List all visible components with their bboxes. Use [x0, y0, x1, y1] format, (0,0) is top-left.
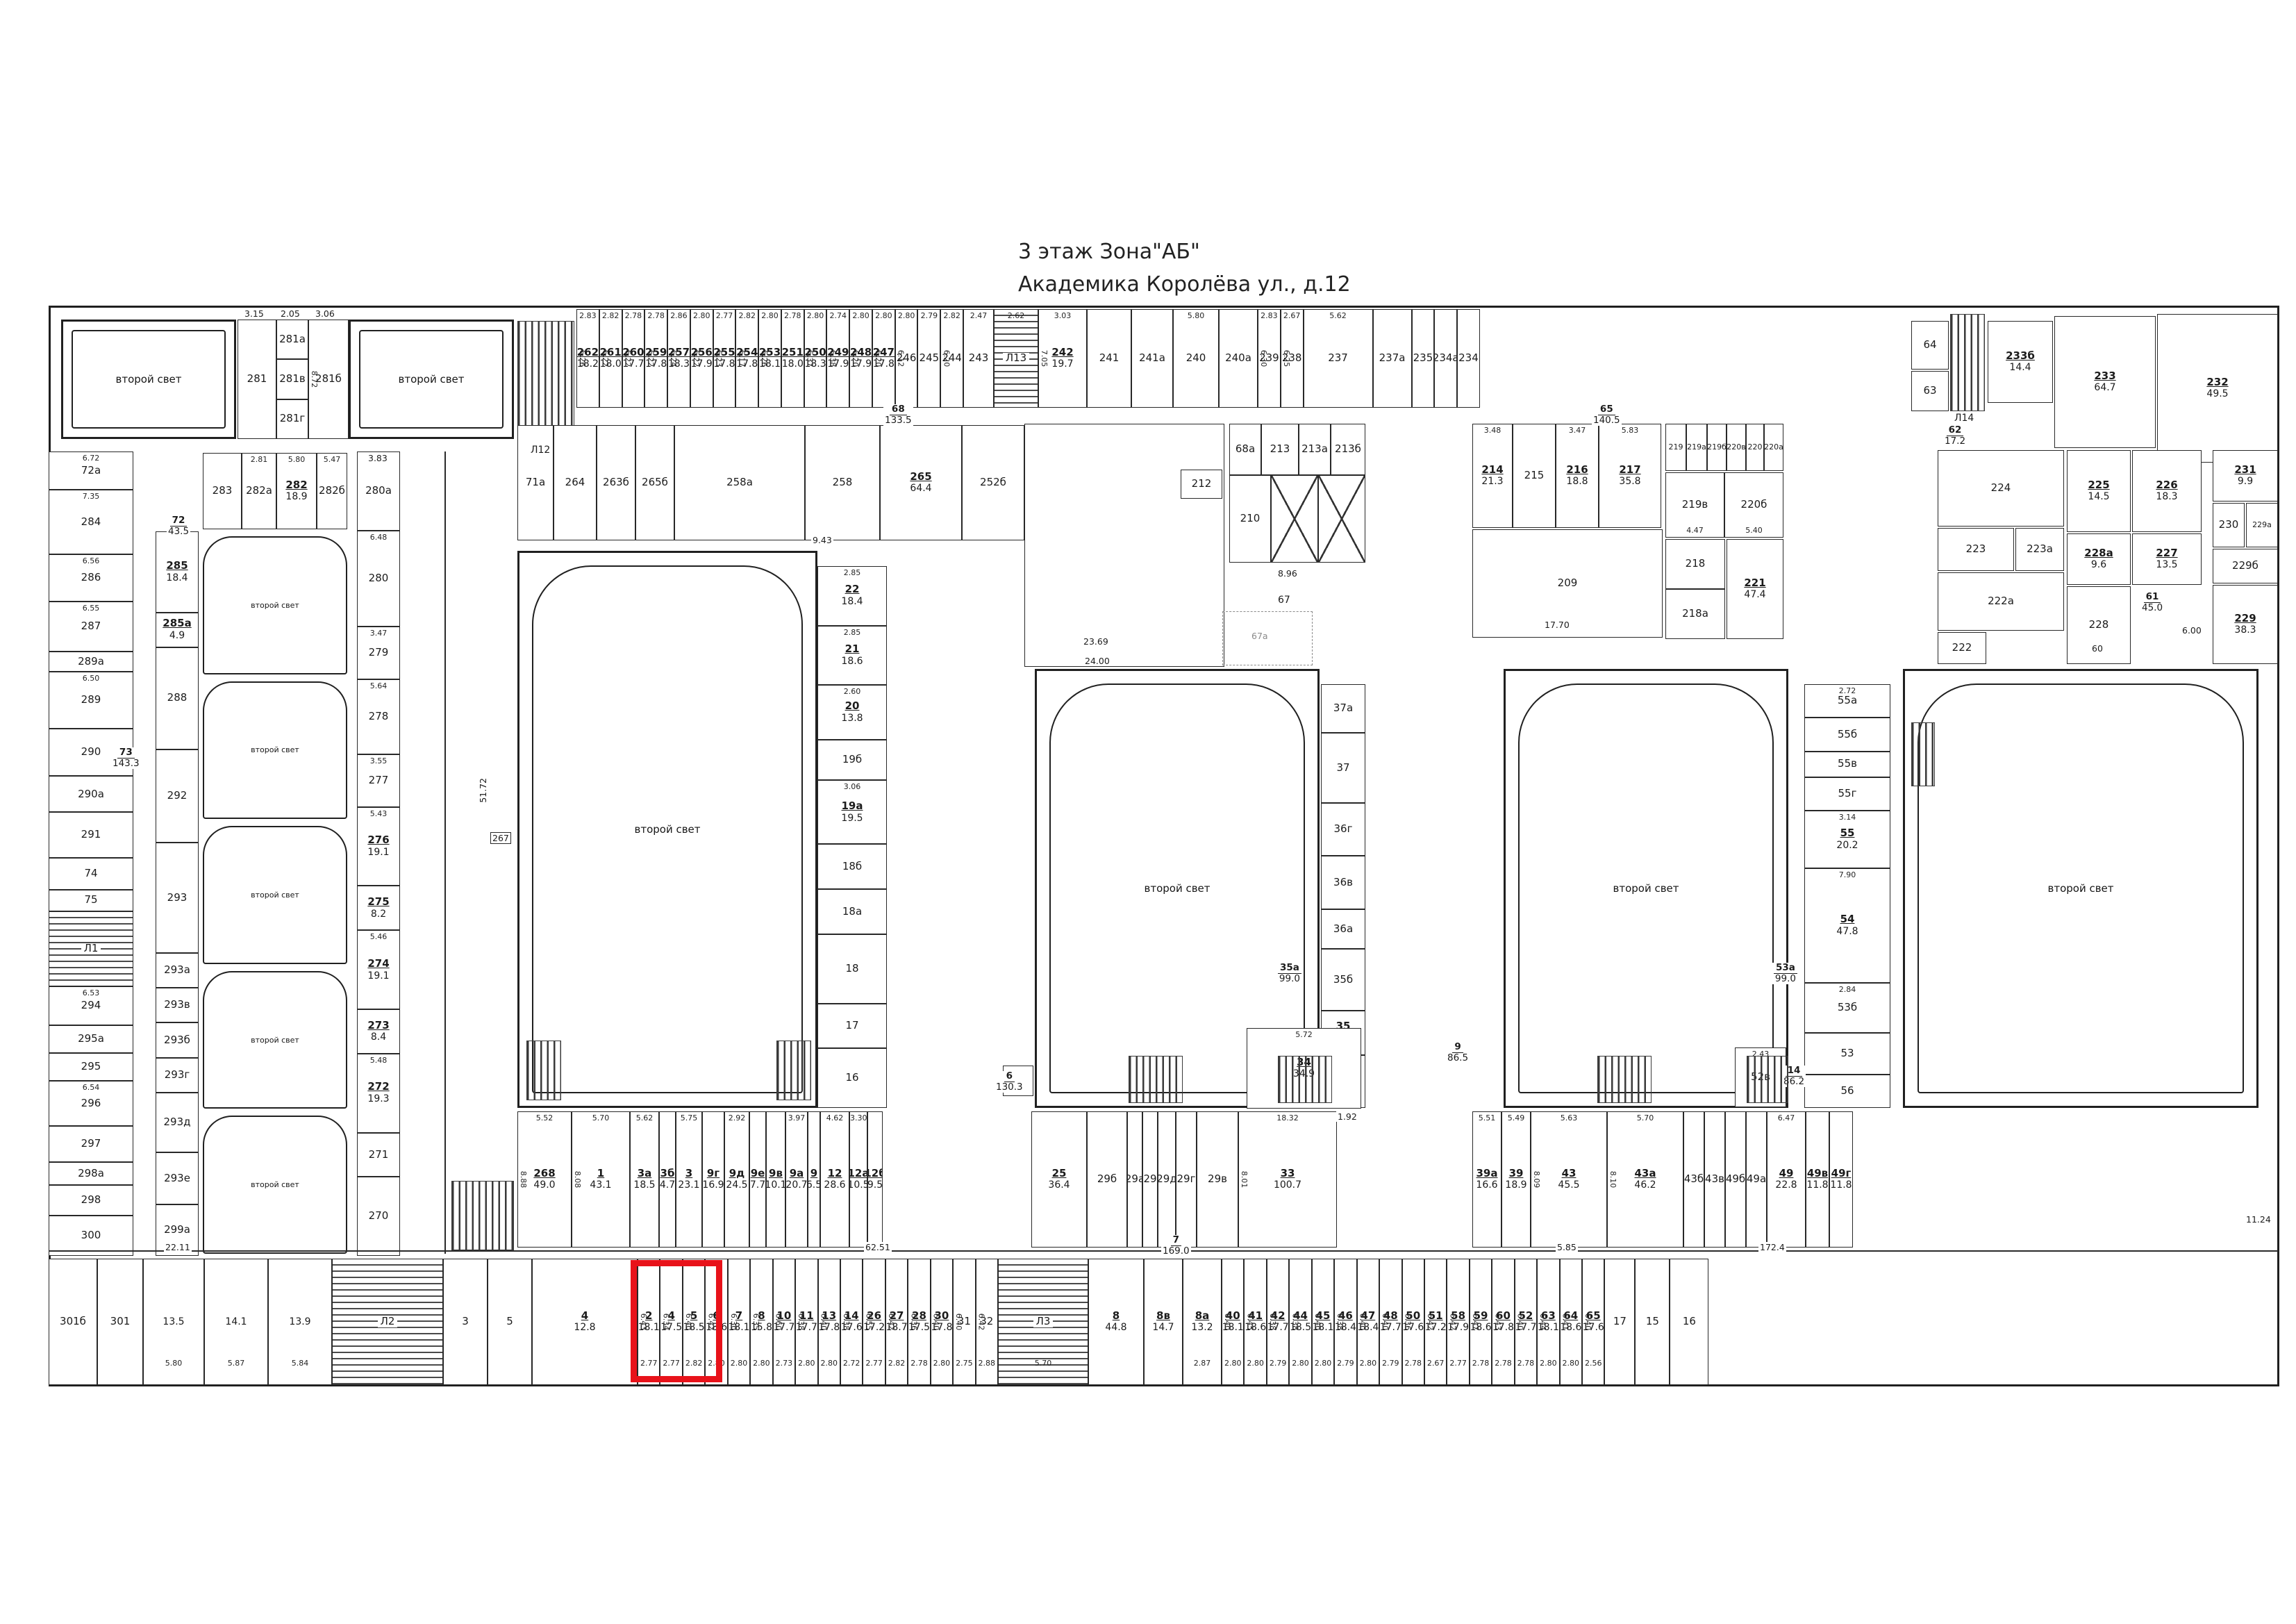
room-area: 13.2: [1191, 1322, 1213, 1333]
room-depth-dim: 8.88: [519, 1171, 528, 1188]
room-width-dim: 2.80: [805, 311, 826, 320]
room-width-dim: 2.74: [827, 311, 849, 320]
room-cell: 5.70 8.08 1 43.1: [572, 1111, 630, 1248]
corridor-area: 17.2: [1945, 436, 1965, 447]
room-width-dim: 2.80: [1290, 1359, 1311, 1368]
room-width-dim: 5.80: [277, 455, 316, 464]
room-number: 36г: [1334, 824, 1353, 835]
room-depth-dim: 6.40: [1313, 1314, 1322, 1331]
room-cell: 2.80 6.40 40 18.1: [1222, 1259, 1244, 1385]
room-cell: 2.81 282а: [242, 453, 276, 529]
room-number: 281а: [279, 334, 306, 345]
room-depth-dim: 6.26: [578, 350, 587, 367]
corridor-area: 169.0: [1163, 1246, 1190, 1257]
room-area: 20.2: [1836, 840, 1858, 851]
room-cell: 29г: [1176, 1111, 1197, 1248]
dim-1-92: 1.92: [1336, 1111, 1358, 1122]
room-number: 227: [2156, 548, 2177, 559]
highlight-red-box: [631, 1260, 722, 1382]
hall-stacked-4: второй свет: [203, 971, 347, 1109]
room-area: 18.9: [285, 491, 307, 502]
room-number: 3: [462, 1316, 469, 1327]
drawing-title: 3 этаж Зона"АБ" Академика Королёва ул., …: [1018, 236, 1351, 301]
room-cell: 6.54 296: [49, 1081, 133, 1127]
room-depth-dim: 6.40: [1381, 1314, 1390, 1331]
room-number: 15: [1646, 1316, 1659, 1327]
room-width-dim: 2.82: [736, 311, 758, 320]
room-cell: Л2: [332, 1259, 443, 1385]
room-number: 220а: [1764, 443, 1783, 451]
room-number: 284: [81, 517, 101, 528]
room-number: 233: [2094, 371, 2115, 382]
corridor-65-label: 65 140.5: [1592, 404, 1622, 426]
room-number: 29в: [1208, 1174, 1227, 1185]
room-cell: 2.83 6.26 262 18.2: [576, 309, 599, 408]
room-cell: 2.78 6.47 59 18.6: [1470, 1259, 1492, 1385]
stair-L14: [1950, 314, 1985, 411]
room-width-dim: 2.77: [714, 311, 735, 320]
room-cell: 258а: [674, 425, 805, 540]
room-area: 16.9: [702, 1179, 724, 1191]
room-cell: 29а: [1127, 1111, 1142, 1248]
room-cell: 288: [156, 647, 199, 749]
room-number: 17: [1613, 1316, 1627, 1327]
room-cell: 2.82 6.17 254 17.8: [735, 309, 758, 408]
room-depth-dim: 6.38: [1336, 1314, 1345, 1331]
room-width-dim: 2.87: [1183, 1359, 1221, 1368]
room-cell: 270: [357, 1177, 400, 1256]
room-width-dim: 5.64: [358, 681, 399, 690]
left-right-room-column: 6.20 280а 6.48 280 3.47 279 5.64 278 3.5…: [357, 451, 400, 1256]
room-width-dim: 3.48: [1473, 426, 1512, 435]
room-number: 3а: [638, 1168, 652, 1179]
room-area: 13.9: [289, 1316, 310, 1327]
room-depth-dim: 6.44: [1538, 1314, 1547, 1331]
dim-label: 3.83: [367, 453, 389, 463]
room-number: 293в: [164, 1000, 190, 1011]
corridor-7-label: 7 169.0: [1161, 1235, 1191, 1257]
room-cell: 43в: [1704, 1111, 1725, 1248]
room-number: 293: [167, 893, 188, 904]
room-cell: 2.77 6.55 26 17.2: [863, 1259, 885, 1385]
room-cell: 6.48 280: [357, 531, 400, 627]
room-cell: 2.80 6.30 7 18.1: [728, 1259, 750, 1385]
room-width-dim: 5.87: [205, 1359, 267, 1368]
room-cell: 36а: [1321, 909, 1365, 950]
room-width-dim: 5.63: [1531, 1113, 1606, 1122]
room-cell: 298а: [49, 1162, 133, 1184]
room-cell: 2.86 6.24 257 18.3: [667, 309, 690, 408]
room-area: 22.8: [1775, 1179, 1797, 1191]
room-width-dim: 2.78: [1492, 1359, 1513, 1368]
room-cell: 2.56 6.40 65 17.6: [1582, 1259, 1604, 1385]
hall-label: второй свет: [251, 601, 299, 610]
hall-label: второй свет: [1144, 882, 1210, 895]
room-number: 12а: [849, 1168, 867, 1179]
room-cell: 285а 4.9: [156, 613, 199, 647]
room-number: 293а: [164, 965, 190, 976]
room-number: 9г: [707, 1168, 719, 1179]
room-depth-dim: 6.22: [692, 350, 701, 367]
room-number: 281г: [280, 413, 306, 424]
corridor-35a-label: 35а 99.0: [1276, 963, 1303, 984]
room-67-label: 67: [1276, 595, 1292, 606]
room-number: 240а: [1225, 353, 1251, 364]
room-width-dim: 5.75: [676, 1113, 701, 1122]
room-212: 212: [1181, 470, 1222, 499]
room-number: 75: [84, 895, 97, 906]
room-depth-dim: 6.20: [851, 350, 860, 367]
room-width-dim: 6.47: [1767, 1113, 1805, 1122]
room-number: 232: [2206, 377, 2228, 388]
corridor-number: 61: [2144, 592, 2161, 603]
room-cell: 258: [805, 425, 880, 540]
room-cell: 2.75 6.40 31: [953, 1259, 975, 1385]
room-width-dim: 5.40: [1725, 526, 1783, 535]
room-width-dim: 3.47: [358, 629, 399, 638]
stair-left-corridor: [451, 1181, 514, 1250]
room-area: 13.8: [841, 713, 863, 724]
room-cell: 71а: [517, 425, 554, 540]
room-230: 230: [2213, 503, 2245, 547]
room-number: 3б: [660, 1168, 675, 1179]
room-cell: 3.06 19а 19.5: [817, 780, 887, 845]
room-width-dim: 2.80: [1561, 1359, 1581, 1368]
room-number: 295а: [78, 1034, 104, 1045]
room-cell: 8 44.8: [1088, 1259, 1144, 1385]
room-cell: 234: [1457, 309, 1480, 408]
rooms-219-220-row: 219 219а 219б 220в 220 220а: [1665, 424, 1783, 471]
room-width-dim: 2.82: [600, 311, 622, 320]
room-area: 4.7: [660, 1179, 675, 1191]
room-number: 223а: [2027, 544, 2053, 555]
room-64: 64: [1911, 321, 1949, 370]
room-cell: Л1: [49, 911, 133, 986]
room-area: 18.5: [633, 1179, 655, 1191]
room-width-dim: 2.73: [774, 1359, 795, 1368]
room-cell: 2.80 6.40 13 17.8: [818, 1259, 840, 1385]
room-number: 39а: [1476, 1168, 1498, 1179]
room-number: 3: [685, 1168, 692, 1179]
room-cell: 6.53 294: [49, 986, 133, 1026]
room-width-dim: 2.83: [1258, 311, 1280, 320]
room-cell: 5.51 39а 16.6: [1472, 1111, 1501, 1248]
corridor-number: 68: [890, 404, 907, 415]
room-depth-dim: 6.42: [887, 1314, 896, 1331]
room-width-dim: 2.78: [1403, 1359, 1424, 1368]
corridor-area: 133.5: [885, 415, 912, 426]
corridor-61-label: 61 45.0: [2140, 592, 2164, 613]
room-width-dim: 2.67: [1281, 311, 1303, 320]
room-number: 25: [1052, 1168, 1067, 1179]
room-cell: 263б: [597, 425, 635, 540]
room-number: 55а: [1838, 695, 1857, 706]
room-width-dim: 2.78: [645, 311, 667, 320]
room-cell: 2.77 6.42 58 17.9: [1447, 1259, 1469, 1385]
room-number: 21: [845, 644, 860, 655]
room-cell: 2.78 251 18.0: [781, 309, 804, 408]
room-cell: 218: [1665, 539, 1725, 589]
room-cell: 5.46 274 19.1: [357, 930, 400, 1009]
room-number: 291: [81, 829, 101, 840]
room-area: 14.5: [2088, 491, 2109, 502]
room-cell: 2.80 6.40 30 17.8: [931, 1259, 953, 1385]
room-number: 234а: [1434, 353, 1457, 364]
room-number: 245: [920, 353, 940, 364]
room-width-dim: 7.35: [49, 492, 133, 501]
room-depth-dim: 6.36: [909, 1314, 918, 1331]
room-number: 74: [84, 868, 97, 879]
room-cell: 293г: [156, 1058, 199, 1093]
room-cell: 2.83 6.30 239: [1258, 309, 1281, 408]
room-number: 212: [1192, 479, 1212, 490]
room-number: 301: [110, 1316, 131, 1327]
room-number: 231: [2234, 465, 2256, 476]
room-cell: 5.49 39 18.9: [1501, 1111, 1531, 1248]
room-number: Л2: [378, 1316, 398, 1327]
room-number: 233б: [2006, 351, 2035, 362]
room-number: 270: [369, 1211, 389, 1222]
room-area: 18.3: [2156, 491, 2177, 502]
room-cell: 237а: [1373, 309, 1412, 408]
room-281b: 281б 8.72: [308, 320, 349, 439]
room-number: 274: [367, 959, 389, 970]
room-cell: 213а: [1299, 424, 1331, 475]
hall-inner: второй свет: [1918, 683, 2244, 1093]
room-width-dim: 5.46: [358, 932, 399, 941]
room-width-dim: 2.78: [1515, 1359, 1536, 1368]
room-width-dim: 2.88: [976, 1359, 997, 1368]
room-number: 12: [828, 1168, 842, 1179]
room-67a-label: 67а: [1250, 631, 1270, 641]
room-number: 18б: [842, 861, 862, 872]
room-width-dim: 2.80: [1358, 1359, 1379, 1368]
room-depth-dim: 6.37: [806, 350, 815, 367]
room-area: 18.6: [841, 656, 863, 667]
room-width-dim: 3.06: [818, 782, 886, 791]
room-depth-dim: 6.42: [977, 1314, 986, 1331]
room-width-dim: 4.62: [821, 1113, 849, 1122]
room-area: 9.6: [2091, 559, 2106, 570]
room-number: 237а: [1379, 353, 1406, 364]
room-cell: 75: [49, 890, 133, 911]
room-cell: 37а: [1321, 684, 1365, 733]
room-cell: 18.32 8.01 33 100.7: [1238, 1111, 1337, 1248]
room-cell: 2.78 6.40 52 17.7: [1515, 1259, 1537, 1385]
room-width-dim: 2.82: [941, 311, 963, 320]
hall-label: второй свет: [398, 373, 464, 386]
room-cell: 293в: [156, 988, 199, 1022]
room-number: 224: [1991, 483, 2011, 494]
room-number: 213б: [1335, 444, 1361, 455]
room-width-dim: 5.70: [999, 1359, 1088, 1368]
room-depth-dim: 6.41: [1561, 1314, 1570, 1331]
room-depth-dim: 6.40: [1516, 1314, 1525, 1331]
room-cell: 293е: [156, 1152, 199, 1204]
room-area: 19.7: [1051, 358, 1073, 370]
room-width-dim: 2.67: [1425, 1359, 1446, 1368]
room-cell: 29д: [1158, 1111, 1176, 1248]
room-cell: 2.85 22 18.4: [817, 566, 887, 626]
corridor-53a-label: 53а 99.0: [1772, 963, 1799, 984]
room-number: 223: [1966, 544, 1986, 555]
room-number: Л13: [1003, 353, 1029, 364]
room-number: 33: [1281, 1168, 1295, 1179]
room-cell: 15: [1635, 1259, 1670, 1385]
room-number: 22: [845, 584, 860, 595]
room-depth-dim: 6.42: [1426, 1314, 1435, 1331]
room-area: 47.8: [1836, 926, 1858, 937]
dim-23-69: 23.69: [1082, 636, 1110, 647]
rooms-281a-group: 281а 281в 281г: [276, 320, 308, 439]
room-width-dim: 2.80: [873, 311, 895, 320]
room-cell: 68а: [1229, 424, 1261, 475]
room-area: 21.3: [1481, 476, 1503, 487]
room-cell: 293а: [156, 953, 199, 988]
hall3-hall4-column: 2.72 55а 55б 55в 55г 3.14 55 20.2 7.90 5…: [1804, 684, 1890, 1108]
room-number: 272: [367, 1082, 389, 1093]
room-area: 11.8: [1830, 1179, 1852, 1191]
stairwell-hall3-right: [1747, 1056, 1788, 1103]
room-width-dim: 5.83: [1599, 426, 1661, 435]
room-depth-dim: 6.40: [1358, 1314, 1367, 1331]
room-width-dim: 18.32: [1239, 1113, 1336, 1122]
room-depth-dim: 6.12: [897, 350, 906, 367]
room-width-dim: 2.80: [896, 311, 917, 320]
hall-stacked-2: второй свет: [203, 681, 347, 820]
room-number: 68а: [1236, 444, 1255, 455]
room-cell: 49а: [1746, 1111, 1767, 1248]
room-cell: 220б 5.40: [1724, 472, 1783, 538]
room-number: 55: [1840, 828, 1855, 839]
room-number: 55г: [1838, 788, 1857, 799]
room-or-lift-cell: [1318, 475, 1365, 563]
room-cell: 6.72 72а: [49, 451, 133, 490]
room-number: 281: [247, 374, 267, 385]
room-number: 229а: [2252, 521, 2272, 529]
room-cell: 2.67 6.42 51 17.2: [1424, 1259, 1447, 1385]
room-cell: 220в: [1727, 424, 1746, 471]
room-depth-dim: 6.22: [601, 350, 610, 367]
room-number: 37: [1336, 763, 1349, 774]
room-cell: 55г: [1804, 777, 1890, 811]
room-cell: 5.84 13.9: [268, 1259, 332, 1385]
hall-inner: второй свет: [72, 330, 226, 429]
room-number: 294: [81, 1000, 101, 1011]
hall-topleft-2: второй свет: [349, 320, 514, 439]
room-number: 16: [1683, 1316, 1696, 1327]
inner-room-column: 285 18.4 285а 4.9 288 292 293 293а 293в …: [156, 531, 199, 1256]
corridor-number: 53а: [1774, 963, 1797, 974]
room-number: 230: [2219, 520, 2239, 531]
room-width-dim: 2.80: [1313, 1359, 1333, 1368]
room-depth-dim: 6.55: [864, 1314, 873, 1331]
room-number: 1: [597, 1168, 604, 1179]
room-number: 228а: [2084, 548, 2113, 559]
dim-11-24: 11.24: [2245, 1214, 2272, 1225]
row-above-hall-1: 71а 264 263б 265б 258а 258 265 64.4 252б: [517, 425, 1024, 540]
room-number: 18а: [842, 906, 862, 918]
room-depth-dim: 6.38: [797, 1314, 806, 1331]
room-cell: 2.78 6.36 28 17.5: [908, 1259, 930, 1385]
room-cell: 18б: [817, 844, 887, 889]
room-depth-dim: 6.25: [1282, 350, 1291, 367]
room-cell: 55б: [1804, 718, 1890, 751]
room-number: 286: [81, 572, 101, 583]
room-number: 235: [1413, 353, 1433, 364]
hall-label: второй свет: [251, 745, 299, 754]
room-cell: 3б 4.7: [659, 1111, 676, 1248]
hall-label: второй свет: [1613, 882, 1679, 895]
room-area: 44.8: [1105, 1322, 1126, 1333]
room-cell: 6.20 280а: [357, 451, 400, 531]
room-cell: 9г 16.9: [702, 1111, 724, 1248]
room-number: 17: [845, 1020, 858, 1031]
room-depth-dim: 8.09: [1532, 1171, 1541, 1188]
room-area: 46.2: [1634, 1179, 1656, 1191]
corridor-area: 99.0: [1279, 974, 1300, 984]
room-cell: 5: [488, 1259, 532, 1385]
room-cell: 235: [1412, 309, 1435, 408]
room-cell: 219в 4.47: [1665, 472, 1724, 538]
room-number: 12б: [867, 1168, 883, 1179]
room-area: 6.5: [808, 1179, 820, 1191]
room-width-dim: 3.55: [358, 756, 399, 765]
room-cell: 241а: [1131, 309, 1173, 408]
room-depth-dim: 6.20: [942, 350, 951, 367]
room-width-dim: 2.80: [1222, 1359, 1243, 1368]
room-number: 9: [810, 1168, 817, 1179]
room-number: 210: [1240, 513, 1261, 524]
room-depth-dim: 6.45: [1245, 1314, 1254, 1331]
room-cell: 5.80 13.5: [143, 1259, 204, 1385]
room-cell: 3.03 7.05 242 19.7: [1038, 309, 1087, 408]
room-233: 233 64.7: [2054, 316, 2156, 448]
room-number: 209: [1558, 578, 1578, 589]
room-cell: 2.47 243: [963, 309, 994, 408]
corridor-number: 35а: [1278, 963, 1301, 974]
room-number: 301б: [60, 1316, 86, 1327]
room-number: 49б: [1726, 1174, 1745, 1185]
room-number: 293б: [164, 1035, 190, 1046]
rooms-219v-220b-row: 219в 4.47 220б 5.40: [1665, 472, 1783, 538]
room-number: 297: [81, 1138, 101, 1150]
room-area: 13.5: [2156, 559, 2177, 570]
hall-4: второй свет: [1903, 669, 2258, 1108]
room-number: 263б: [603, 477, 629, 488]
room-cell: 2.80 6.26 253 18.1: [758, 309, 781, 408]
rooms-214-217-row: 3.48 214 21.3 215 3.47 216 18.8 5.83 217…: [1472, 424, 1663, 528]
dim-label: 3.06: [314, 308, 336, 319]
room-cell: 17: [817, 1004, 887, 1049]
room-width-dim: 2.80: [729, 1359, 749, 1368]
room-225: 225 14.5: [2067, 450, 2131, 532]
room-number: 264: [565, 477, 585, 488]
room-depth-dim: 6.38: [842, 1314, 851, 1331]
room-cell: 6.50 289: [49, 672, 133, 728]
corridor-68-label: 68 133.5: [883, 404, 913, 426]
top-room-band: 2.83 6.26 262 18.2 2.82 6.22 261 18.0 2.…: [576, 309, 1480, 408]
room-number: 217: [1619, 465, 1640, 476]
room-cell: 2.79 6.40 48 17.7: [1379, 1259, 1401, 1385]
room-cell: 74: [49, 858, 133, 890]
room-area: 49.5: [2206, 388, 2228, 399]
room-width-dim: 5.72: [1247, 1030, 1361, 1039]
hall-topleft-1: второй свет: [61, 320, 236, 439]
room-281: 281: [238, 320, 276, 439]
room-cell: 2.82 6.22 261 18.0: [599, 309, 622, 408]
room-number: 72а: [81, 465, 101, 477]
